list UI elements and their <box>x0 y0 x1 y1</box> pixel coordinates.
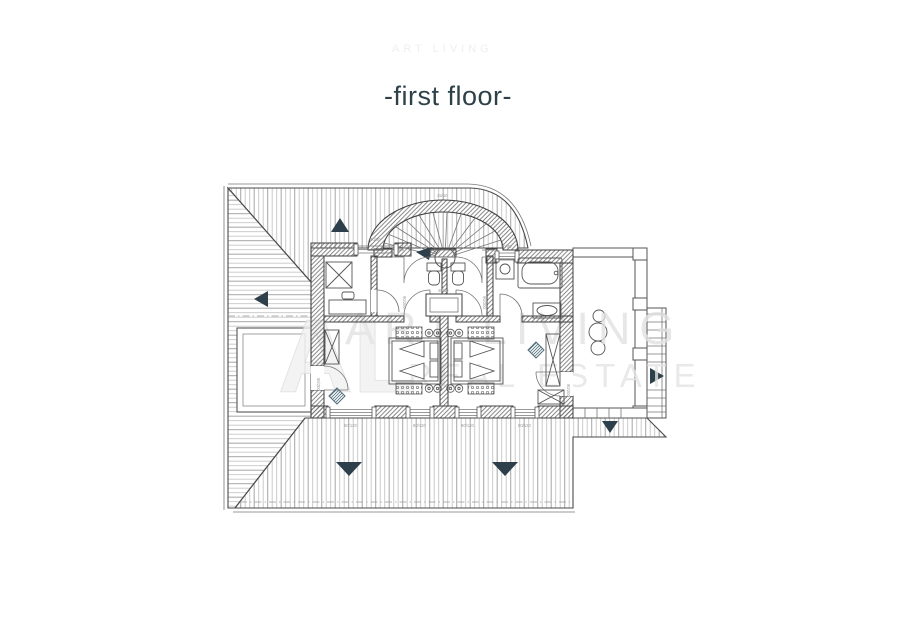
wall-bottom-pier-3 <box>433 406 457 418</box>
wall-bottom-pier-2 <box>375 406 408 418</box>
roof-plane-bottom <box>235 418 666 508</box>
wall-bottom-pier-5 <box>538 406 573 418</box>
dim-window-top-2: 70/80 <box>501 244 512 249</box>
wall-top-left <box>311 243 357 256</box>
watermark-top-fragment: ART LIVING <box>392 43 493 55</box>
dim-stair: 25/10 <box>437 193 448 198</box>
dim-window-top-1: 70/80 <box>370 237 381 242</box>
dim-window-bottom-1: 80/120 <box>344 423 357 428</box>
dim-door-4: 90/200 <box>566 384 571 397</box>
floor-plan-canvas: ART LIVING AL ART LIVING REAL ESTATE <box>0 0 900 636</box>
floor-plan-page: ART LIVING AL ART LIVING REAL ESTATE <box>0 0 900 636</box>
wall-partition-left-a <box>324 316 404 322</box>
dim-window-bottom-2: 80/120 <box>413 423 426 428</box>
wall-partition-left-b <box>430 316 440 322</box>
door-entry-left <box>404 257 430 283</box>
page-title: -first floor- <box>384 81 512 111</box>
door-entry-right <box>456 257 482 283</box>
watermark-line2: REAL ESTATE <box>408 357 703 394</box>
wall-partition-right-a <box>456 316 500 322</box>
wall-bath-top <box>517 250 573 263</box>
dim-door-2: 90/200 <box>482 296 487 309</box>
wall-bottom-pier-4 <box>480 406 513 418</box>
wall-left-upper <box>311 256 324 366</box>
dim-window-bottom-4: 80/120 <box>518 423 531 428</box>
terrace-step-band <box>573 408 647 418</box>
wall-bottom-pier-1 <box>311 406 328 418</box>
toilet-right <box>451 263 465 285</box>
dim-door-1: 90/200 <box>402 296 407 309</box>
dim-niche: 40/60 <box>438 288 449 293</box>
dim-door-3: 90/200 <box>316 378 321 391</box>
niche <box>426 294 462 316</box>
shower-left <box>326 262 352 288</box>
dim-window-bottom-3: 80/120 <box>461 423 474 428</box>
wall-partition-right-b <box>522 316 573 322</box>
